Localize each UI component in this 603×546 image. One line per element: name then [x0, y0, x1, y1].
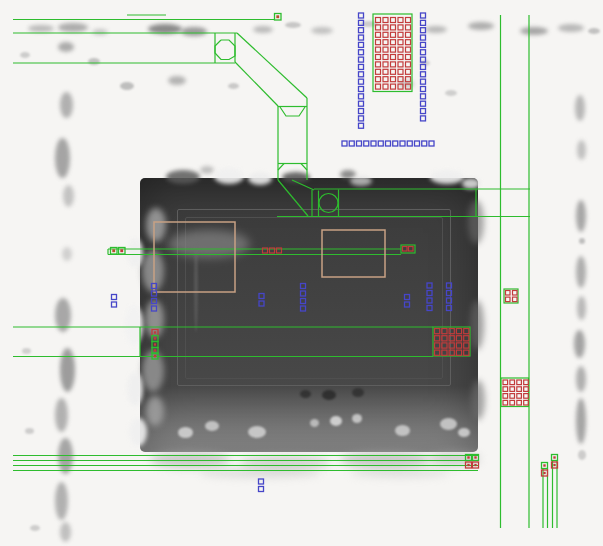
contact-square: [152, 299, 157, 304]
contact-square: [386, 141, 391, 146]
contact-square: [359, 64, 364, 69]
contact-square: [421, 50, 426, 55]
contact-square: [359, 79, 364, 84]
contact-square: [301, 306, 306, 311]
via-square: [435, 350, 440, 355]
cad-marker-squares: [111, 14, 558, 477]
cad-red-vias: [263, 18, 529, 406]
contact-square: [421, 109, 426, 114]
via-square: [376, 69, 381, 74]
contact-square: [112, 295, 117, 300]
via-square: [383, 69, 388, 74]
via-square: [435, 329, 440, 334]
via-square: [503, 387, 508, 392]
via-square: [391, 55, 396, 60]
cad-green-wires: [13, 15, 557, 528]
contact-square: [357, 141, 362, 146]
contact-square: [301, 299, 306, 304]
wire-segment: [292, 180, 314, 190]
contact-square: [393, 141, 398, 146]
via-square: [510, 380, 515, 385]
cad-overlay: [0, 0, 603, 546]
contact-square: [359, 20, 364, 25]
via-square: [513, 297, 518, 302]
marker-square-inner: [474, 456, 476, 458]
via-square: [406, 84, 411, 89]
via-square: [406, 77, 411, 82]
contact-square: [421, 42, 426, 47]
via-square: [517, 400, 522, 405]
via-square: [406, 40, 411, 45]
via-square: [376, 77, 381, 82]
marker-square-inner: [120, 249, 123, 252]
via-square: [398, 47, 403, 52]
contact-square: [405, 302, 410, 307]
via-square: [517, 394, 522, 399]
contact-square: [359, 101, 364, 106]
via-square: [435, 343, 440, 348]
contact-square: [359, 109, 364, 114]
contact-square: [421, 20, 426, 25]
contact-square: [421, 87, 426, 92]
contact-square: [421, 64, 426, 69]
guide-rect: [154, 222, 235, 292]
contact-square: [427, 283, 432, 288]
contact-square: [447, 291, 452, 296]
wire-segment: [235, 62, 278, 106]
contact-square: [301, 291, 306, 296]
via-square: [376, 40, 381, 45]
contact-square: [421, 79, 426, 84]
via-square: [524, 400, 529, 405]
contact-square: [378, 141, 383, 146]
contact-square: [429, 141, 434, 146]
contact-square: [421, 28, 426, 33]
contact-square: [421, 94, 426, 99]
contact-square: [415, 141, 420, 146]
via-square: [383, 55, 388, 60]
contact-square: [359, 35, 364, 40]
contact-square: [259, 301, 264, 306]
contact-square: [359, 94, 364, 99]
contact-square: [447, 283, 452, 288]
contact-square: [421, 101, 426, 106]
via-square: [398, 18, 403, 23]
marker-square-inner: [553, 456, 555, 458]
contact-square: [421, 13, 426, 18]
contact-square: [359, 42, 364, 47]
via-pad-outline: [215, 40, 235, 60]
via-square: [442, 336, 447, 341]
via-square: [406, 62, 411, 67]
sem-cad-viewport[interactable]: [0, 0, 603, 546]
via-square: [376, 62, 381, 67]
contact-square: [427, 298, 432, 303]
contact-square: [427, 291, 432, 296]
via-square: [391, 77, 396, 82]
via-square: [383, 40, 388, 45]
contact-square: [421, 57, 426, 62]
via-square: [449, 343, 454, 348]
via-square: [391, 69, 396, 74]
via-square: [383, 32, 388, 37]
via-square: [449, 336, 454, 341]
via-square: [376, 55, 381, 60]
via-square: [464, 343, 469, 348]
guide-rect: [322, 230, 385, 277]
via-square: [398, 84, 403, 89]
marker-square-inner: [543, 472, 545, 474]
via-square: [456, 350, 461, 355]
contact-square: [259, 294, 264, 299]
via-square: [376, 47, 381, 52]
via-square: [524, 394, 529, 399]
via-square: [398, 40, 403, 45]
contact-square: [447, 298, 452, 303]
marker-square-inner: [553, 464, 555, 466]
via-array-box: [504, 289, 518, 303]
via-square: [442, 329, 447, 334]
contact-square: [427, 306, 432, 311]
via-square: [383, 77, 388, 82]
contact-square: [152, 306, 157, 311]
marker-square-inner: [112, 249, 115, 252]
via-square: [398, 62, 403, 67]
marker-square-inner: [154, 331, 156, 333]
contact-square: [359, 123, 364, 128]
via-square: [398, 69, 403, 74]
marker-square-inner: [543, 464, 545, 466]
contact-square: [359, 87, 364, 92]
via-square: [406, 55, 411, 60]
contact-square: [359, 116, 364, 121]
via-square: [503, 394, 508, 399]
via-square: [464, 336, 469, 341]
via-pad-circle: [319, 194, 338, 213]
via-square: [406, 47, 411, 52]
via-square: [449, 350, 454, 355]
via-square: [391, 62, 396, 67]
via-square: [510, 394, 515, 399]
via-array-box: [373, 14, 412, 92]
wire-segment: [237, 33, 307, 98]
contact-square: [405, 295, 410, 300]
via-square: [456, 343, 461, 348]
via-square: [456, 336, 461, 341]
via-square: [456, 329, 461, 334]
via-square: [403, 247, 408, 252]
via-pad-outline: [278, 164, 307, 171]
via-square: [391, 18, 396, 23]
via-square: [442, 343, 447, 348]
via-square: [383, 62, 388, 67]
via-square: [464, 329, 469, 334]
contact-square: [349, 141, 354, 146]
via-square: [391, 47, 396, 52]
via-square: [383, 18, 388, 23]
marker-square-inner: [154, 349, 156, 351]
via-square: [383, 84, 388, 89]
contact-square: [371, 141, 376, 146]
contact-square: [259, 487, 264, 492]
contact-square: [421, 35, 426, 40]
via-square: [506, 291, 511, 296]
contact-square: [364, 141, 369, 146]
via-square: [398, 55, 403, 60]
via-square: [435, 336, 440, 341]
via-square: [391, 40, 396, 45]
cad-tan-guide-rects: [154, 222, 385, 292]
via-square: [376, 32, 381, 37]
via-square: [391, 25, 396, 30]
contact-square: [421, 72, 426, 77]
via-square: [409, 247, 414, 252]
contact-square: [359, 28, 364, 33]
contact-square: [342, 141, 347, 146]
via-square: [524, 380, 529, 385]
via-pad-outline: [280, 107, 305, 116]
via-square: [406, 25, 411, 30]
via-square: [449, 329, 454, 334]
via-square: [464, 350, 469, 355]
via-square: [406, 69, 411, 74]
marker-square-inner: [467, 456, 469, 458]
via-square: [376, 84, 381, 89]
marker-square-inner: [474, 464, 476, 466]
via-square: [398, 77, 403, 82]
via-square: [376, 18, 381, 23]
via-square: [503, 380, 508, 385]
marker-square-inner: [467, 464, 469, 466]
via-square: [406, 32, 411, 37]
marker-square-inner: [154, 355, 156, 357]
via-square: [383, 25, 388, 30]
via-square: [503, 400, 508, 405]
contact-square: [301, 284, 306, 289]
via-square: [391, 84, 396, 89]
contact-square: [407, 141, 412, 146]
via-square: [391, 32, 396, 37]
via-square: [510, 400, 515, 405]
via-square: [513, 291, 518, 296]
via-square: [510, 387, 515, 392]
via-square: [398, 32, 403, 37]
via-square: [383, 47, 388, 52]
contact-square: [259, 479, 264, 484]
contact-square: [359, 72, 364, 77]
contact-square: [422, 141, 427, 146]
via-square: [376, 25, 381, 30]
contact-square: [400, 141, 405, 146]
contact-square: [359, 50, 364, 55]
via-square: [398, 25, 403, 30]
via-square: [406, 18, 411, 23]
via-square: [517, 387, 522, 392]
contact-square: [359, 57, 364, 62]
via-square: [524, 387, 529, 392]
contact-square: [447, 306, 452, 311]
contact-square: [421, 116, 426, 121]
via-square: [442, 350, 447, 355]
contact-square: [359, 13, 364, 18]
marker-square-inner: [154, 337, 156, 339]
marker-square-inner: [154, 343, 156, 345]
contact-square: [112, 302, 117, 307]
marker-square-inner: [276, 15, 279, 18]
via-square: [517, 380, 522, 385]
via-square: [506, 297, 511, 302]
